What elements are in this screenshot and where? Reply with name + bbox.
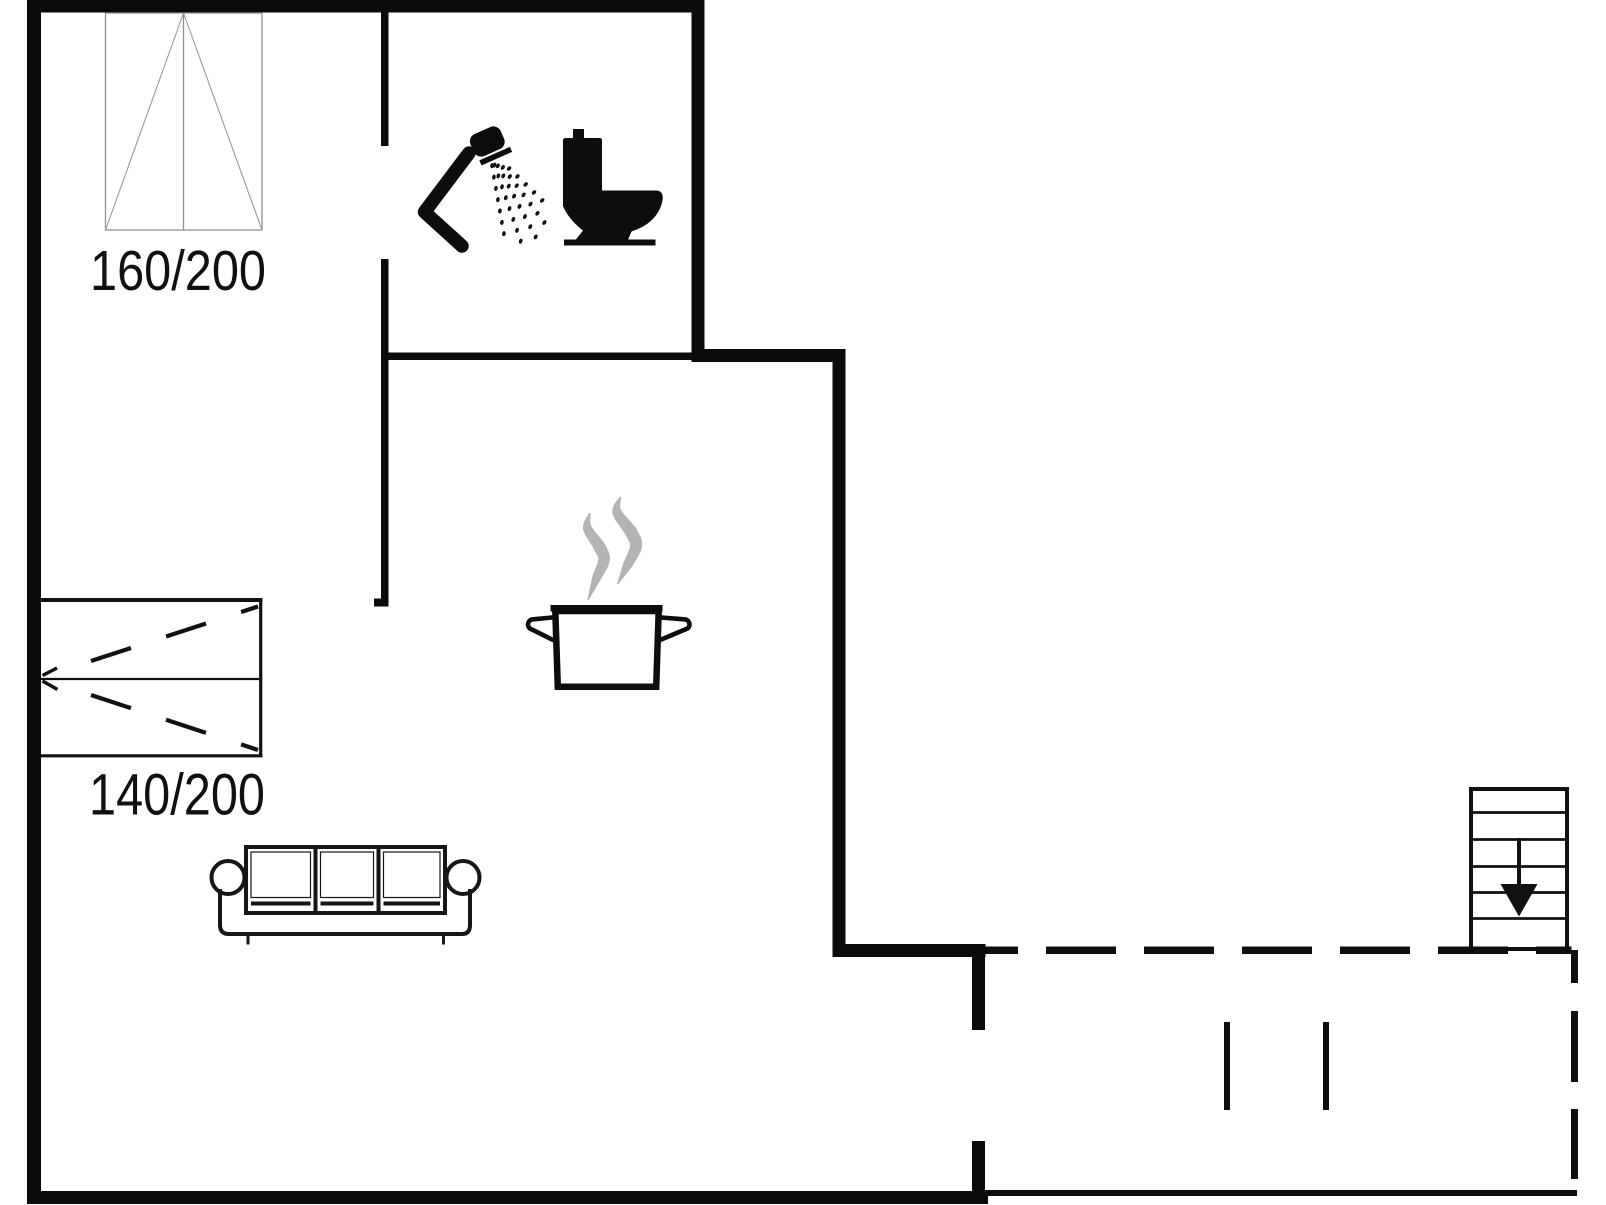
svg-text:140/200: 140/200 — [89, 763, 265, 828]
svg-text:160/200: 160/200 — [90, 239, 266, 303]
